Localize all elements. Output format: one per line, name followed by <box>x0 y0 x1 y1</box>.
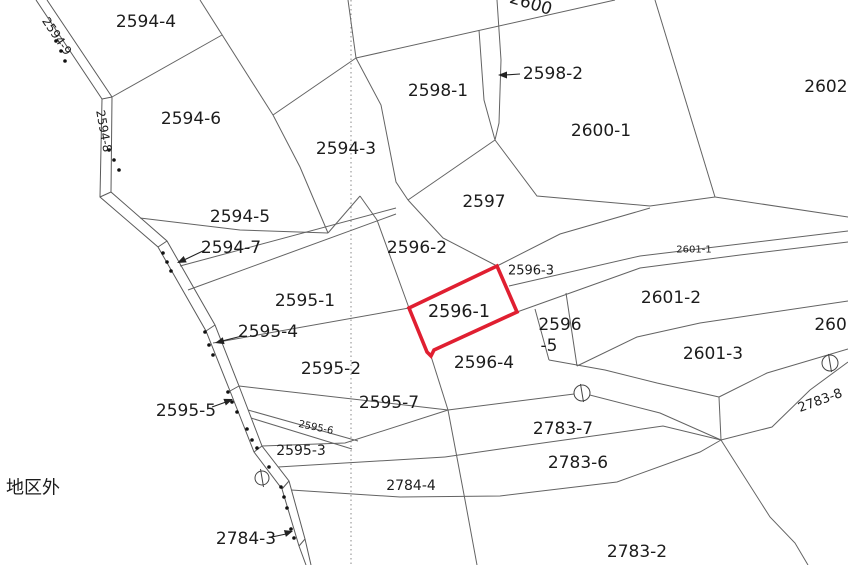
parcel-label-2594-5: 2594-5 <box>210 207 270 227</box>
parcel-label-2595-2: 2595-2 <box>301 359 361 379</box>
parcel-label-2784-3: 2784-3 <box>216 529 276 549</box>
parcel-label-2595-3: 2595-3 <box>276 443 326 459</box>
road-boundary-lines <box>36 0 311 565</box>
parcel-boundary-lines <box>112 0 848 565</box>
parcel-label-2596-1: 2596-1 <box>428 302 490 322</box>
parcel-label-2601-2: 2601-2 <box>641 288 701 308</box>
parcel-label-2783-2: 2783-2 <box>607 542 667 562</box>
parcel-label-2601-3: 2601-3 <box>683 344 743 364</box>
parcel-label-2784-4: 2784-4 <box>386 478 436 494</box>
parcel-label-2595-1: 2595-1 <box>275 291 335 311</box>
parcel-label-2597: 2597 <box>462 192 505 212</box>
parcel-label-2594-9: 2594-9 <box>39 15 74 58</box>
parcel-label-2596-4: 2596-4 <box>454 353 514 373</box>
parcel-label-2596-5-line2: -5 <box>541 336 558 356</box>
parcel-label-2783-7: 2783-7 <box>533 419 593 439</box>
parcel-label-2594-4: 2594-4 <box>116 12 176 32</box>
parcel-label-2596-5-line1: 2596 <box>538 315 581 335</box>
arrow-to-2784-3 <box>284 530 293 537</box>
arrow-to-2598-2 <box>498 72 507 79</box>
parcel-label-2594-3: 2594-3 <box>316 139 376 159</box>
parcel-label-2594-7: 2594-7 <box>201 238 261 258</box>
parcel-label-2595-7: 2595-7 <box>359 393 419 413</box>
parcel-label-2783-6: 2783-6 <box>548 453 608 473</box>
cadastral-map-page: 2594-4 2594-9 2594-6 2594-8 2598-1 2598-… <box>0 0 848 565</box>
parcel-label-2594-6: 2594-6 <box>161 109 221 129</box>
parcel-label-2601-1: 2601-1 <box>676 245 711 256</box>
parcel-label-2600: 2600 <box>507 0 554 20</box>
parcel-label-2602-top: 2602- <box>804 77 848 97</box>
parcel-label-2783-8: 2783-8 <box>796 386 844 416</box>
parcel-label-2595-4: 2595-4 <box>238 322 298 342</box>
arrow-to-2594-7 <box>177 256 187 263</box>
cadastral-map: 2594-4 2594-9 2594-6 2594-8 2598-1 2598-… <box>0 0 848 565</box>
parcel-label-2596-2: 2596-2 <box>387 238 447 258</box>
parcel-label-2598-2: 2598-2 <box>523 64 583 84</box>
parcel-label-2594-8: 2594-8 <box>93 109 114 153</box>
parcel-label-2600-1: 2600-1 <box>571 121 631 141</box>
parcel-label-2602-right: 2602 <box>814 315 848 335</box>
parcel-label-2598-1: 2598-1 <box>408 81 468 101</box>
parcel-label-2596-3: 2596-3 <box>508 264 554 279</box>
parcel-label-2595-5: 2595-5 <box>156 401 216 421</box>
parcel-labels: 2594-4 2594-9 2594-6 2594-8 2598-1 2598-… <box>6 0 848 562</box>
outside-district-label: 地区外 <box>6 477 60 498</box>
